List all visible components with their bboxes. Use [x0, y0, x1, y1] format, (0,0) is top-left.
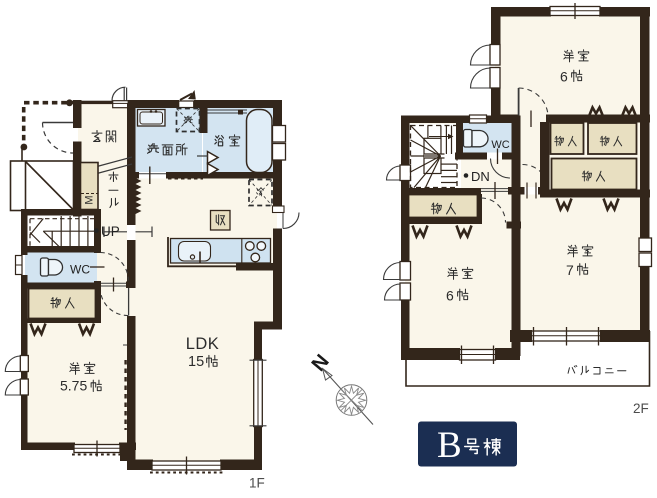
svg-text:5.75: 5.75	[60, 378, 87, 394]
svg-text:WC: WC	[491, 139, 509, 151]
svg-text:LDK: LDK	[186, 335, 220, 353]
svg-text:6: 6	[446, 288, 454, 304]
svg-text:WC: WC	[70, 263, 90, 277]
svg-text:N: N	[308, 351, 334, 376]
svg-text:B: B	[437, 425, 462, 466]
svg-text:DN: DN	[471, 169, 490, 184]
svg-text:1F: 1F	[249, 476, 265, 491]
svg-text:UP: UP	[101, 224, 120, 239]
svg-text:7: 7	[566, 262, 574, 278]
svg-text:M: M	[84, 195, 96, 204]
svg-text:15: 15	[188, 354, 204, 370]
svg-text:6: 6	[560, 69, 568, 85]
svg-text:2F: 2F	[633, 401, 649, 416]
